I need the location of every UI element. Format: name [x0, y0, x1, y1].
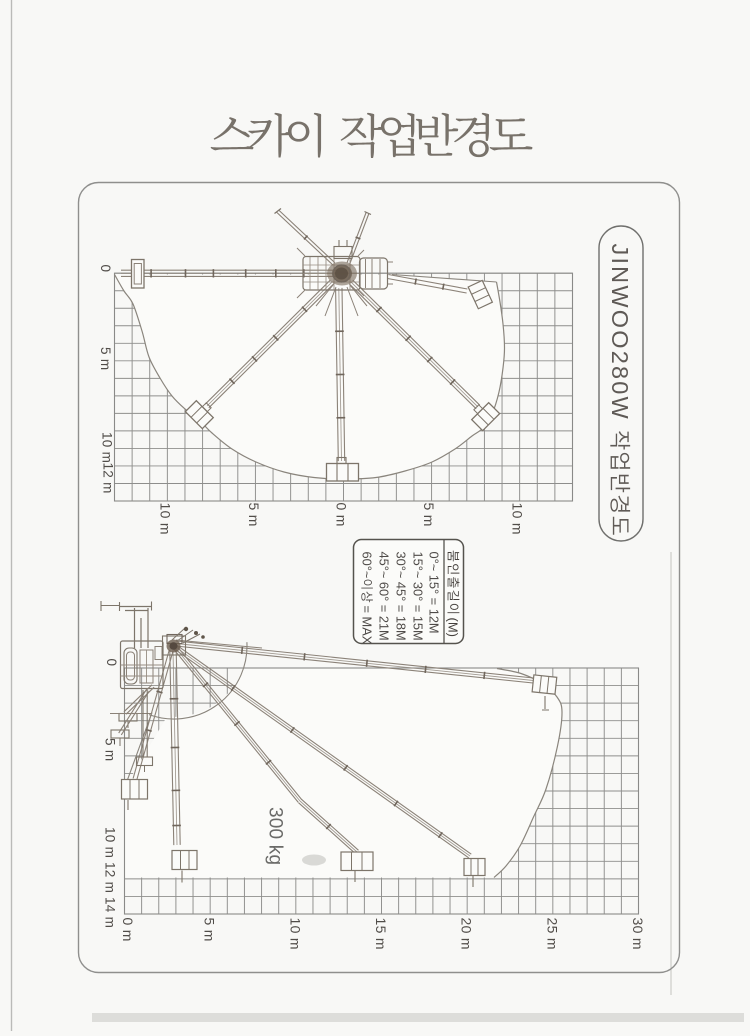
svg-text:25 m: 25 m [544, 918, 560, 950]
svg-text:20 m: 20 m [459, 918, 475, 950]
svg-text:10 m: 10 m [100, 432, 115, 463]
svg-text:15°~ 30° = 15M: 15°~ 30° = 15M [410, 552, 425, 641]
svg-text:10 m: 10 m [510, 503, 526, 535]
svg-text:10 m: 10 m [157, 503, 173, 535]
svg-text:10 m: 10 m [103, 827, 118, 858]
svg-text:14 m: 14 m [103, 897, 118, 928]
svg-text:5 m: 5 m [246, 503, 262, 527]
svg-text:30 m: 30 m [630, 918, 646, 950]
svg-text:0 m: 0 m [333, 503, 349, 527]
svg-text:0: 0 [104, 659, 119, 667]
svg-text:0 m: 0 m [120, 918, 136, 942]
svg-text:10 m: 10 m [287, 918, 303, 950]
svg-text:JINWOO280W: JINWOO280W [607, 244, 633, 421]
svg-text:15 m: 15 m [373, 918, 389, 950]
svg-text:5 m: 5 m [98, 347, 113, 370]
svg-text:0: 0 [98, 265, 113, 273]
svg-text:5 m: 5 m [103, 738, 118, 761]
svg-text:5 m: 5 m [421, 503, 437, 527]
svg-text:60°~: 60°~ [359, 552, 374, 579]
svg-text:(M): (M) [446, 618, 461, 638]
svg-text:12 m: 12 m [103, 862, 118, 893]
svg-text:300 kg: 300 kg [265, 807, 286, 865]
svg-text:0°~ 15° = 12M: 0°~ 15° = 12M [426, 552, 441, 634]
svg-text:5 m: 5 m [202, 918, 218, 942]
svg-text:= MAX: = MAX [359, 606, 374, 645]
svg-text:12 m: 12 m [101, 463, 116, 494]
svg-text:45°~ 60° = 21M: 45°~ 60° = 21M [376, 552, 391, 641]
svg-text:30°~ 45° = 18M: 30°~ 45° = 18M [393, 552, 408, 641]
